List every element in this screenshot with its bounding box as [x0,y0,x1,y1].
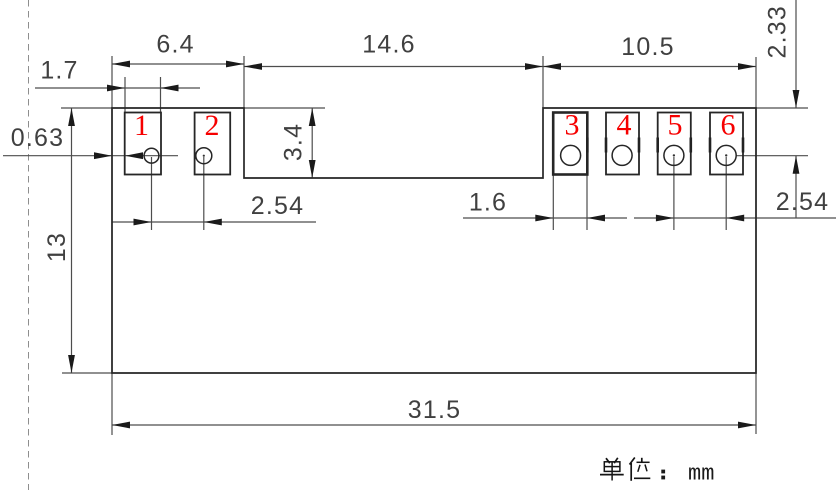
svg-text:3: 3 [565,109,580,142]
svg-text:1: 1 [134,109,149,142]
svg-text:2.33: 2.33 [764,5,792,58]
svg-text:3.4: 3.4 [280,123,308,161]
svg-text:14.6: 14.6 [362,31,415,59]
svg-text:6.4: 6.4 [156,31,194,59]
svg-text:2.54: 2.54 [251,192,304,220]
svg-text:0.63: 0.63 [11,124,64,152]
svg-text:4: 4 [617,109,632,142]
svg-text:2.54: 2.54 [776,188,829,216]
svg-text:31.5: 31.5 [408,396,461,424]
svg-text:1.6: 1.6 [469,189,507,217]
svg-text:2: 2 [205,109,220,142]
svg-text:10.5: 10.5 [621,33,674,61]
svg-text:6: 6 [721,109,736,142]
svg-text:13: 13 [43,232,71,262]
svg-text:mm: mm [688,462,714,487]
svg-text:1.7: 1.7 [40,57,78,85]
svg-text:5: 5 [668,109,683,142]
